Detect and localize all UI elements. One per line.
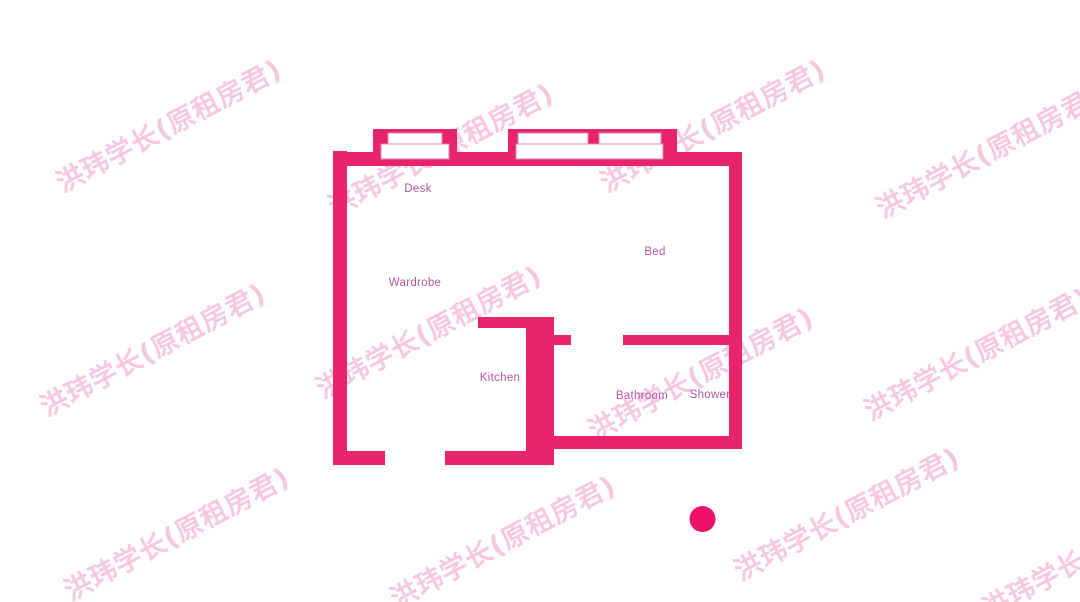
- floorplan-page: 洪玮学长(原租房君) 洪玮学长(原租房君) 洪玮学长(原租房君) 洪玮学长(原租…: [0, 0, 1080, 602]
- pillow-top: [704, 214, 729, 249]
- label-wardrobe: Wardrobe: [389, 277, 441, 289]
- window-bay2-pane-left: [518, 133, 588, 144]
- basin-pedestal: [631, 420, 657, 435]
- wall-bottom-left-b: [445, 451, 526, 465]
- bathroom-door-swing-arc: [571, 343, 621, 392]
- kitchen-sink: [484, 425, 518, 449]
- desk-chair-armrest-left: [398, 210, 403, 234]
- window-bay2-pane-right: [599, 133, 661, 144]
- windows: [381, 133, 663, 159]
- toilet-bowl: [579, 399, 611, 433]
- hob: [483, 332, 520, 352]
- location-marker-dot: [690, 506, 716, 532]
- sink-drain: [509, 435, 512, 438]
- wall-top-left: [333, 152, 378, 166]
- wall-tick-dot: [348, 408, 353, 413]
- wall-left: [333, 151, 347, 465]
- window-bay1-pane: [388, 133, 442, 144]
- window-bay2-sill: [516, 144, 663, 159]
- wardrobe: [345, 244, 386, 319]
- bathroom-door-leaf: [562, 343, 570, 392]
- entry-door-knob: [383, 401, 392, 410]
- basin: [630, 408, 657, 427]
- desk-chair-armrest-right: [430, 210, 435, 234]
- shower-head-icon: [704, 424, 711, 431]
- wall-right: [729, 152, 742, 449]
- desk-chair-seat: [392, 220, 440, 233]
- sink-drainer-lines: [489, 403, 509, 424]
- label-kitchen: Kitchen: [480, 372, 520, 384]
- entry-door-swing-arc: [392, 403, 446, 452]
- wall-bathroom-top: [623, 335, 742, 345]
- window-bay1-sill: [381, 144, 449, 159]
- wardrobe-door: [385, 289, 390, 318]
- hob-burner-small: [486, 336, 497, 347]
- walls: [333, 129, 742, 465]
- kitchen-counter: [479, 329, 522, 454]
- label-bed: Bed: [644, 246, 665, 258]
- wall-corridor: [526, 317, 554, 465]
- entry-door-leaf: [386, 403, 391, 456]
- wall-kitchen-cap: [478, 317, 554, 328]
- wall-bathroom-stub: [554, 335, 571, 345]
- wall-tick-dot: [348, 425, 353, 430]
- pillow-bottom: [704, 253, 729, 289]
- wall-bottom-right: [554, 436, 742, 449]
- bedside-unit: [684, 167, 696, 209]
- room-labels: Desk Wardrobe Bed Kitchen Bathroom Showe…: [389, 183, 731, 402]
- label-desk: Desk: [404, 183, 431, 195]
- hob-burner-large: [500, 333, 515, 348]
- entry-door-knob: [377, 406, 385, 414]
- bathroom-door-knob: [567, 388, 574, 395]
- wall-bottom-left-a: [333, 451, 385, 465]
- bathroom-door-knob: [560, 384, 568, 392]
- label-bathroom: Bathroom: [616, 390, 668, 402]
- basin-drain: [642, 425, 645, 428]
- label-shower: Shower: [690, 389, 731, 401]
- desk-end-chair: [515, 174, 539, 202]
- desk-end-chair-back: [533, 177, 536, 198]
- wall-top-mid: [452, 152, 513, 166]
- floorplan-drawing: Desk Wardrobe Bed Kitchen Bathroom Showe…: [0, 0, 1080, 602]
